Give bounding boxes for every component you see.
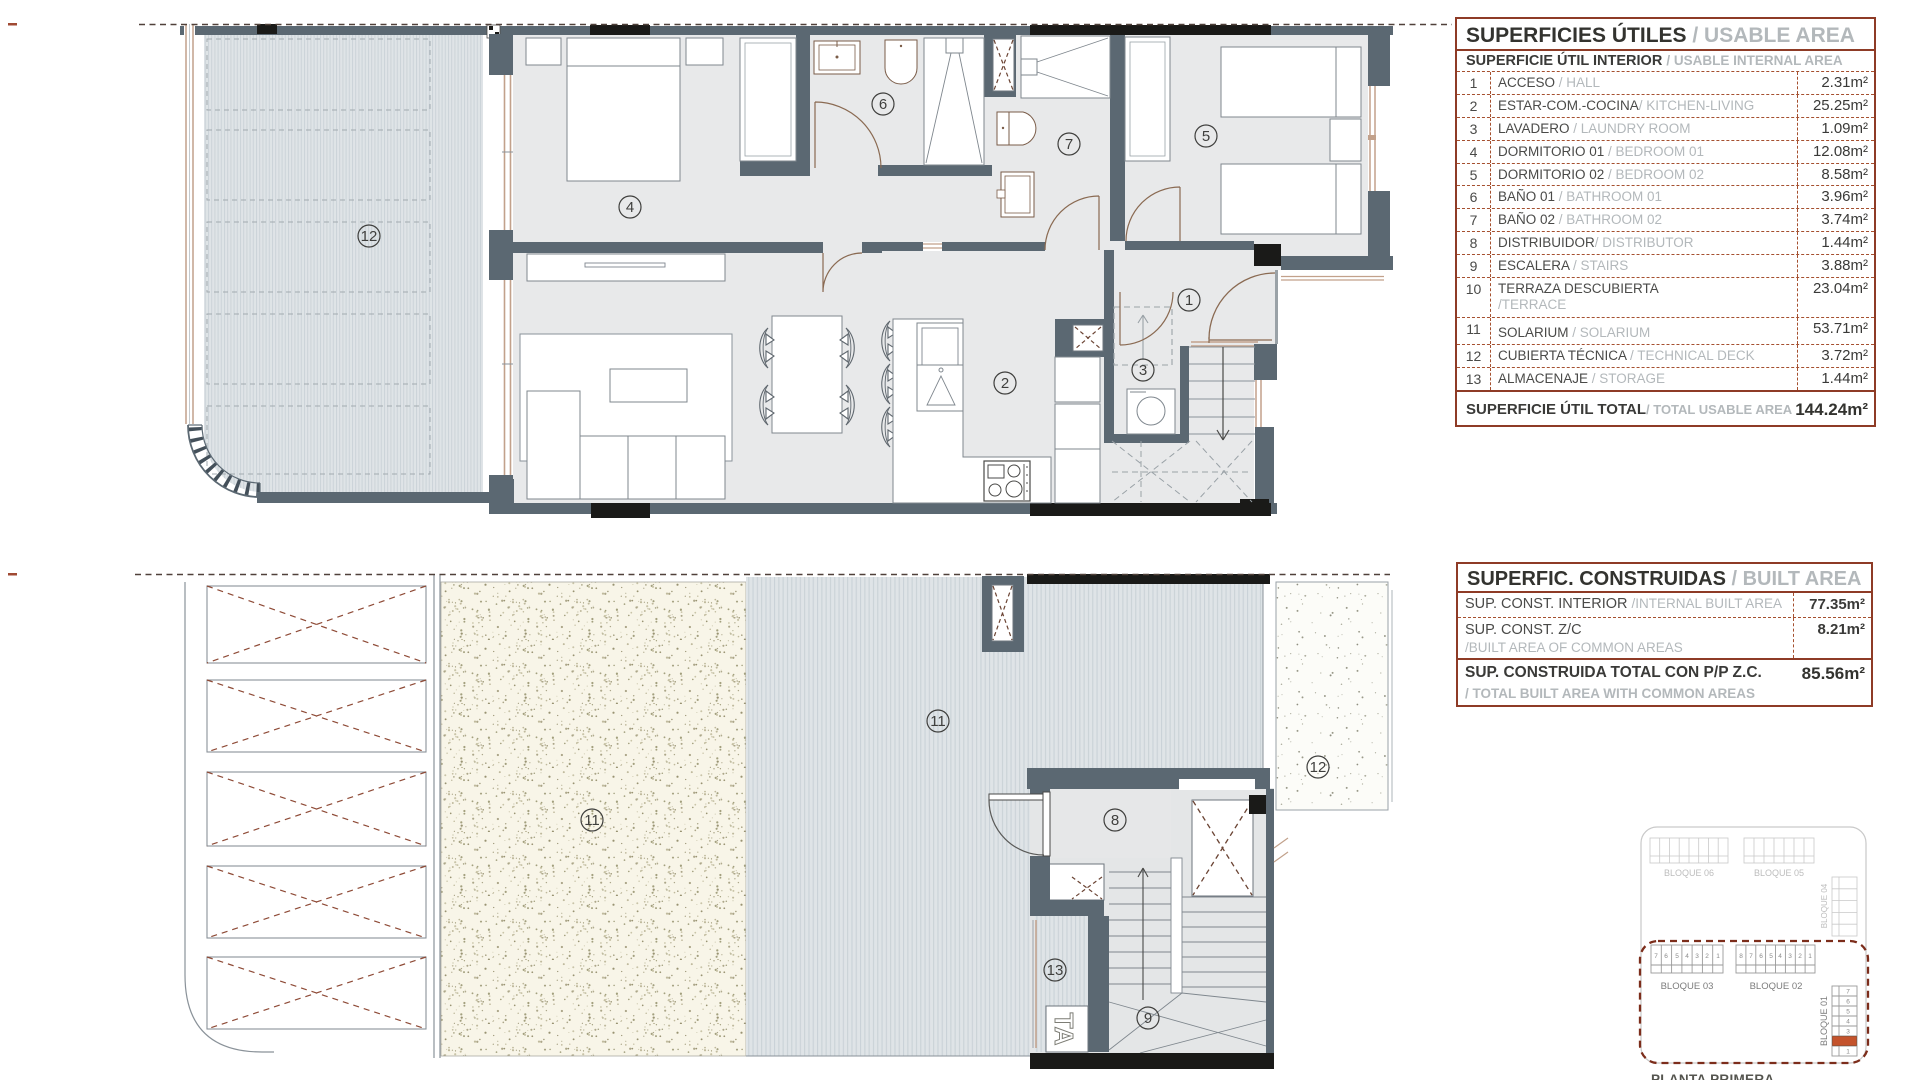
svg-text:3: 3 [1846,1029,1850,1036]
svg-text:8: 8 [1111,812,1119,829]
svg-text:3: 3 [1139,362,1147,379]
svg-text:5: 5 [1202,128,1210,145]
svg-text:5: 5 [1769,953,1773,960]
svg-text:12: 12 [361,228,378,245]
svg-text:7: 7 [1654,953,1658,960]
svg-text:4: 4 [626,199,634,216]
svg-text:2: 2 [1705,953,1709,960]
svg-text:4: 4 [1846,1019,1850,1026]
svg-text:BLOQUE 05: BLOQUE 05 [1754,868,1804,878]
svg-text:6: 6 [879,96,887,113]
svg-text:4: 4 [1685,953,1689,960]
svg-text:3: 3 [1695,953,1699,960]
svg-text:6: 6 [1759,953,1763,960]
svg-text:11: 11 [930,713,946,730]
svg-text:12: 12 [1310,759,1327,776]
svg-text:BLOQUE 06: BLOQUE 06 [1664,868,1714,878]
svg-text:1: 1 [1716,953,1720,960]
svg-text:9: 9 [1144,1010,1152,1027]
svg-text:13: 13 [1047,962,1064,979]
svg-text:3: 3 [1788,953,1792,960]
svg-text:7: 7 [1065,136,1073,153]
svg-text:BLOQUE 03: BLOQUE 03 [1661,981,1714,992]
svg-text:2: 2 [1798,953,1802,960]
svg-text:BLOQUE 02: BLOQUE 02 [1750,981,1803,992]
svg-text:6: 6 [1664,953,1668,960]
svg-text:4: 4 [1778,953,1782,960]
svg-text:1: 1 [1808,953,1812,960]
svg-text:2: 2 [1001,375,1009,392]
svg-text:BLOQUE 01: BLOQUE 01 [1819,996,1829,1046]
svg-text:6: 6 [1846,999,1850,1006]
svg-text:5: 5 [1675,953,1679,960]
svg-text:1: 1 [1846,1049,1850,1056]
svg-text:7: 7 [1749,953,1753,960]
svg-text:5: 5 [1846,1009,1850,1016]
svg-text:7: 7 [1846,989,1850,996]
svg-text:8: 8 [1739,953,1743,960]
svg-text:BLOQUE 04: BLOQUE 04 [1820,883,1829,928]
svg-text:1: 1 [1185,292,1193,309]
svg-text:TA: TA [1049,1013,1079,1046]
svg-text:11: 11 [584,812,600,829]
svg-text:PLANTA PRIMERA: PLANTA PRIMERA [1651,1072,1774,1080]
